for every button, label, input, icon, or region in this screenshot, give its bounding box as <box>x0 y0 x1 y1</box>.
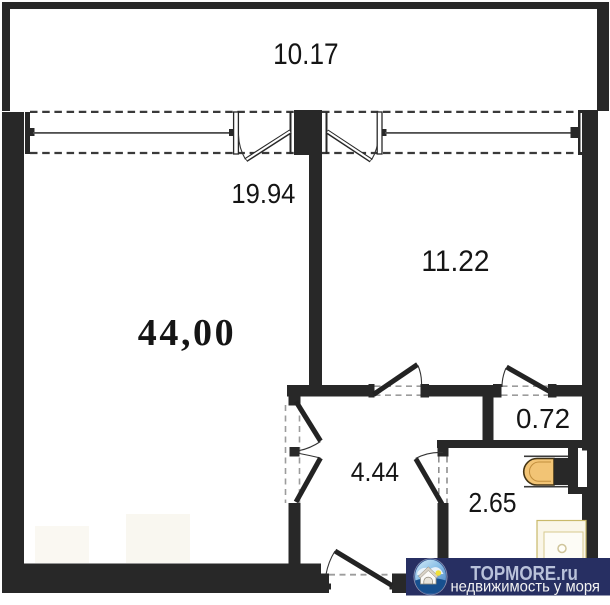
svg-text:19.94: 19.94 <box>231 178 295 209</box>
svg-text:10.17: 10.17 <box>273 37 338 70</box>
svg-text:11.22: 11.22 <box>421 246 489 279</box>
svg-text:44,00: 44,00 <box>138 312 237 354</box>
svg-text:2.65: 2.65 <box>468 487 516 519</box>
svg-text:0.72: 0.72 <box>516 403 570 434</box>
svg-text:недвижимость у моря: недвижимость у моря <box>450 578 600 595</box>
svg-text:4.44: 4.44 <box>351 458 399 487</box>
